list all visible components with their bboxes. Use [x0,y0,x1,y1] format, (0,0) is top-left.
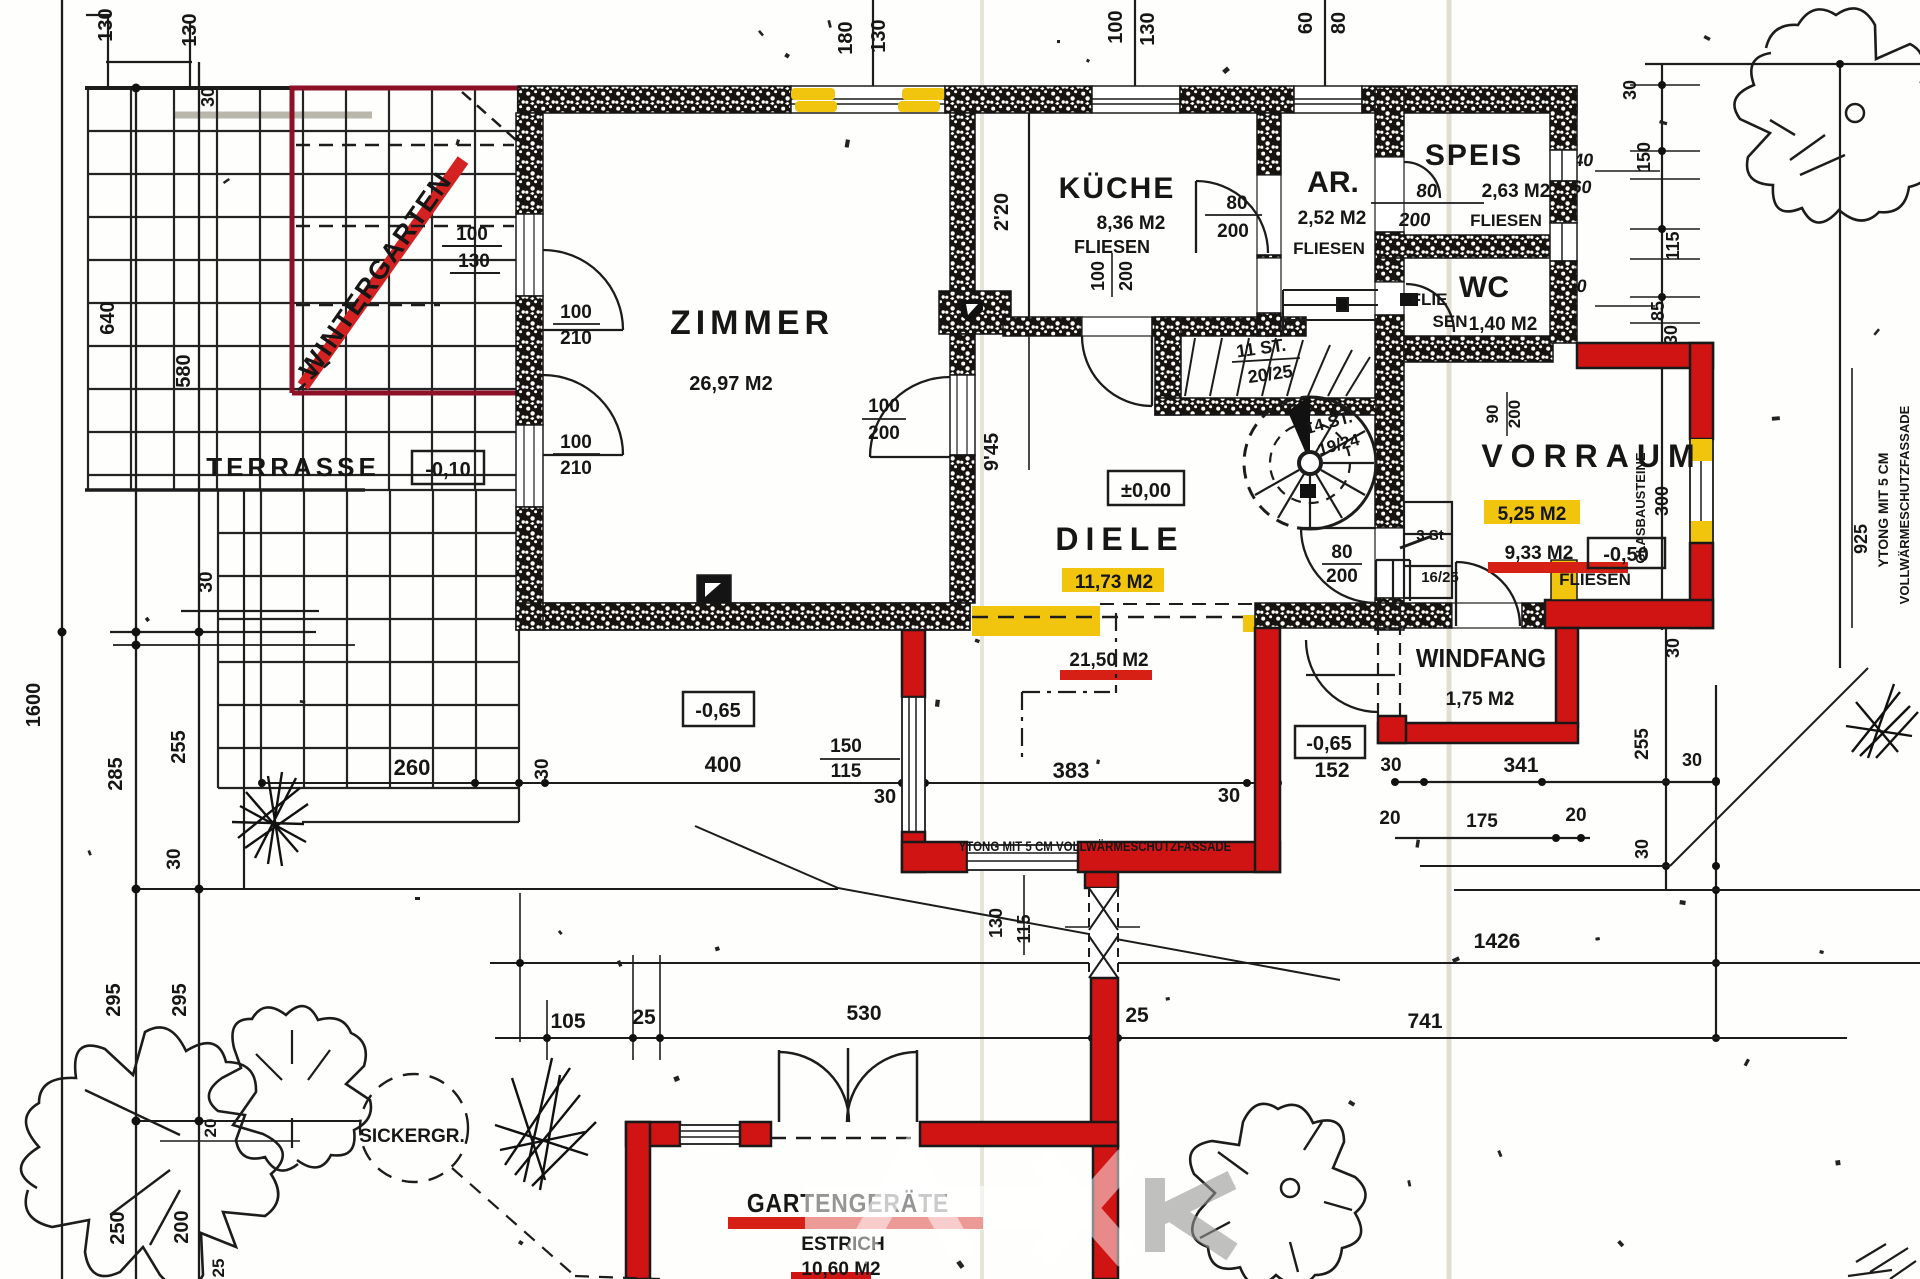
svg-text:250: 250 [107,1211,129,1244]
svg-text:-0,50: -0,50 [1603,544,1649,566]
svg-text:30: 30 [532,758,553,779]
svg-text:1600: 1600 [23,683,45,728]
svg-text:5,25 M2: 5,25 M2 [1498,504,1567,525]
svg-text:200: 200 [1398,210,1432,231]
svg-text:SICKERGR.: SICKERGR. [359,1126,465,1147]
svg-text:20: 20 [201,1119,220,1138]
svg-text:300: 300 [1652,486,1672,516]
svg-text:100: 100 [560,432,592,453]
svg-text:-0,10: -0,10 [425,459,471,481]
svg-text:80: 80 [1415,181,1438,202]
svg-text:255: 255 [168,730,190,763]
svg-text:WINDFANG: WINDFANG [1416,644,1546,673]
svg-text:DIELE: DIELE [1055,521,1184,557]
svg-text:VORRAUM: VORRAUM [1481,438,1702,474]
svg-text:30: 30 [1682,750,1702,770]
svg-text:285: 285 [105,757,127,790]
svg-text:11,73 M2: 11,73 M2 [1075,572,1153,593]
svg-text:FLIESEN: FLIESEN [1559,570,1631,589]
svg-text:30: 30 [1620,80,1640,100]
svg-text:30: 30 [874,786,896,808]
svg-text:-0,65: -0,65 [695,700,741,722]
svg-text:YTONG MIT 5 CM: YTONG MIT 5 CM [1875,453,1891,568]
svg-text:130: 130 [1137,12,1159,45]
svg-text:150: 150 [1634,142,1654,172]
svg-text:20: 20 [1379,808,1400,829]
svg-text:TERRASSE: TERRASSE [206,452,380,482]
svg-text:210: 210 [560,328,592,349]
svg-text:925: 925 [1851,524,1871,554]
svg-text:152: 152 [1314,759,1349,782]
svg-text:100: 100 [1105,10,1127,43]
svg-text:80: 80 [1331,542,1352,563]
svg-text:2,63 M2: 2,63 M2 [1482,181,1551,202]
svg-text:115: 115 [831,761,862,782]
svg-text:KÜCHE: KÜCHE [1059,172,1176,205]
svg-text:400: 400 [705,752,742,777]
svg-text:200: 200 [1326,566,1358,587]
svg-text:AR.: AR. [1307,166,1359,199]
svg-text:1,40 M2: 1,40 M2 [1469,314,1538,335]
svg-text:VOLLWÄRMESCHUTZFASSADE: VOLLWÄRMESCHUTZFASSADE [1897,405,1912,604]
svg-text:30: 30 [1218,785,1240,807]
svg-text:FLIESEN: FLIESEN [1470,211,1542,230]
svg-text:580: 580 [173,354,195,387]
svg-text:1426: 1426 [1474,930,1521,953]
svg-text:200: 200 [1505,400,1524,428]
svg-text:260: 260 [394,755,431,780]
svg-text:100: 100 [560,302,592,323]
svg-text:100: 100 [868,396,900,417]
svg-text:30: 30 [1663,638,1683,658]
svg-text:115: 115 [1014,914,1034,943]
svg-text:30: 30 [198,87,218,107]
svg-text:1,75 M2: 1,75 M2 [1446,689,1515,710]
svg-text:25: 25 [1125,1004,1149,1027]
svg-text:85: 85 [1648,301,1668,321]
svg-text:90: 90 [1483,405,1502,424]
svg-text:3 St: 3 St [1416,527,1444,544]
svg-text:741: 741 [1407,1010,1442,1033]
svg-text:130: 130 [868,19,890,52]
svg-text:295: 295 [103,983,125,1016]
svg-text:100: 100 [456,224,488,245]
svg-text:8,36 M2: 8,36 M2 [1097,213,1166,234]
svg-text:WC: WC [1459,271,1509,304]
svg-text:2'20: 2'20 [991,193,1013,231]
svg-text:295: 295 [169,983,191,1016]
svg-text:640: 640 [97,301,119,334]
svg-text:150: 150 [830,736,862,757]
svg-text:100: 100 [1088,261,1108,291]
svg-text:130: 130 [986,908,1006,938]
svg-text:200: 200 [1116,261,1136,291]
svg-text:175: 175 [1466,811,1498,832]
svg-text:±0,00: ±0,00 [1121,480,1171,502]
svg-text:30: 30 [196,571,217,592]
svg-text:30: 30 [164,848,185,869]
svg-text:20: 20 [1565,805,1586,826]
svg-text:130: 130 [179,13,201,46]
svg-text:60: 60 [1295,12,1317,34]
svg-text:200: 200 [868,423,900,444]
svg-text:SPEIS: SPEIS [1425,139,1523,172]
svg-text:SEN: SEN [1433,312,1468,331]
svg-text:10,60 M2: 10,60 M2 [801,1259,880,1279]
svg-text:16/25: 16/25 [1421,569,1459,586]
svg-text:FLIESEN: FLIESEN [1293,239,1365,258]
svg-text:180: 180 [835,21,857,54]
svg-text:530: 530 [846,1002,881,1025]
svg-text:FLIE: FLIE [1411,290,1448,309]
svg-text:105: 105 [550,1010,585,1033]
svg-text:30: 30 [1380,755,1401,776]
svg-text:130: 130 [95,8,117,41]
svg-text:ZIMMER: ZIMMER [670,304,834,342]
svg-text:130: 130 [458,251,490,272]
svg-text:30: 30 [1632,839,1652,859]
svg-text:9'45: 9'45 [981,433,1003,471]
svg-text:210: 210 [560,458,592,479]
svg-text:26,97 M2: 26,97 M2 [689,373,772,395]
svg-text:255: 255 [1632,728,1653,760]
svg-text:80: 80 [1328,12,1350,34]
svg-text:341: 341 [1503,754,1538,777]
svg-text:383: 383 [1053,758,1090,783]
svg-text:-0,65: -0,65 [1306,733,1352,755]
svg-text:YTONG MIT 5 CM VOLLWÄRMESCHUTZ: YTONG MIT 5 CM VOLLWÄRMESCHUTZFASSADE [959,838,1232,854]
svg-text:9,33 M2: 9,33 M2 [1505,543,1574,564]
svg-text:200: 200 [171,1210,193,1243]
svg-text:115: 115 [1663,231,1683,260]
svg-text:2,52 M2: 2,52 M2 [1298,208,1367,229]
svg-text:25: 25 [209,1259,228,1278]
svg-text:80: 80 [1226,193,1247,214]
svg-text:25: 25 [632,1006,656,1029]
svg-text:21,50 M2: 21,50 M2 [1069,650,1148,671]
svg-text:200: 200 [1217,221,1249,242]
